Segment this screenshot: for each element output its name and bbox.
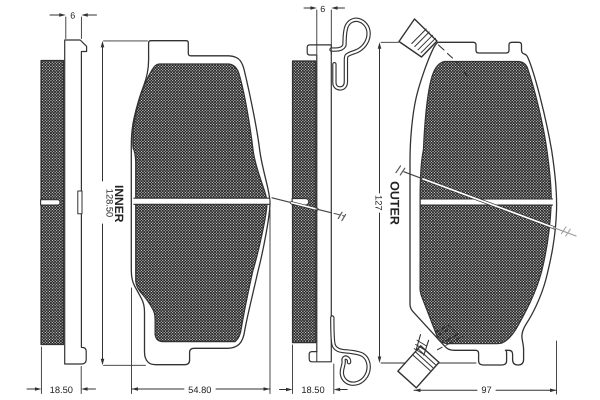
svg-text:97: 97 [481,385,491,395]
svg-text:OUTER: OUTER [388,181,402,225]
svg-text:54.80: 54.80 [188,385,211,395]
svg-text:6: 6 [320,4,325,14]
svg-text:6: 6 [70,10,75,20]
svg-text:18.50: 18.50 [50,385,73,395]
svg-text:127: 127 [374,195,384,211]
svg-text:18.50: 18.50 [301,385,324,395]
svg-text:INNER: INNER [112,185,126,223]
